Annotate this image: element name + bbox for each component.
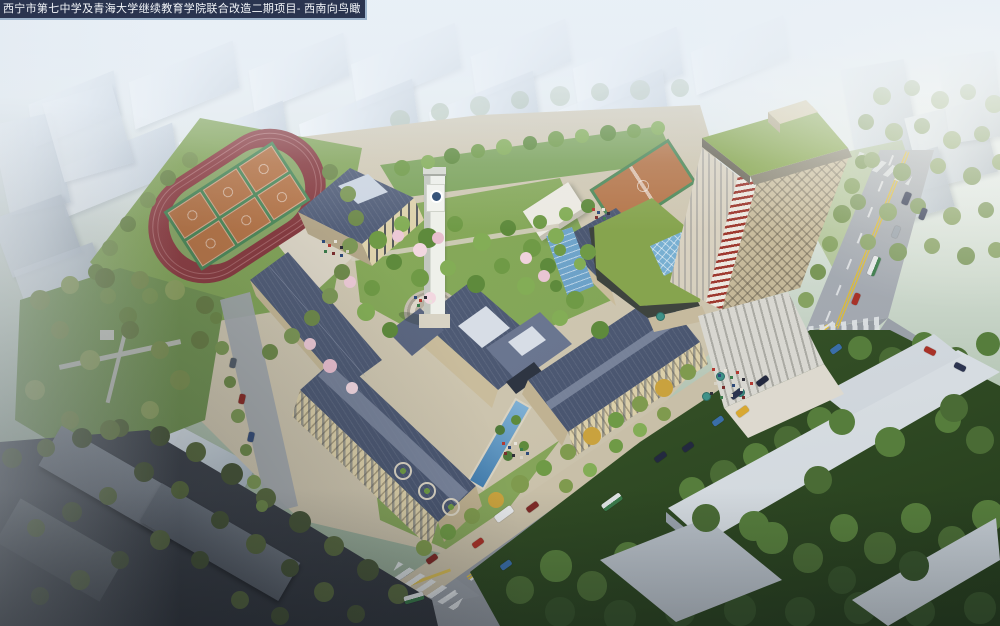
garden-planter (394, 462, 412, 480)
title-text: 西宁市第七中学及青海大学继续教育学院联合改造二期项目- 西南向鸟瞰 (3, 3, 361, 15)
crowd (498, 440, 501, 443)
crowd (318, 238, 321, 241)
title-bar: 西宁市第七中学及青海大学继续教育学院联合改造二期项目- 西南向鸟瞰 (0, 0, 367, 20)
garden-planter (418, 482, 436, 500)
clock-face (430, 190, 443, 203)
clock-tower-cap (423, 167, 446, 176)
rendering-canvas: 西宁市第七中学及青海大学继续教育学院联合改造二期项目- 西南向鸟瞰 (0, 0, 1000, 626)
umbrella (702, 392, 711, 401)
garden-planter (442, 498, 460, 516)
context-building (938, 51, 1000, 144)
crowd (410, 294, 413, 297)
park-patio (100, 330, 114, 340)
clock-tower-plinth (419, 314, 450, 328)
umbrella (656, 312, 665, 321)
crowd (588, 206, 591, 209)
crowd (706, 366, 709, 369)
umbrella (716, 372, 725, 381)
